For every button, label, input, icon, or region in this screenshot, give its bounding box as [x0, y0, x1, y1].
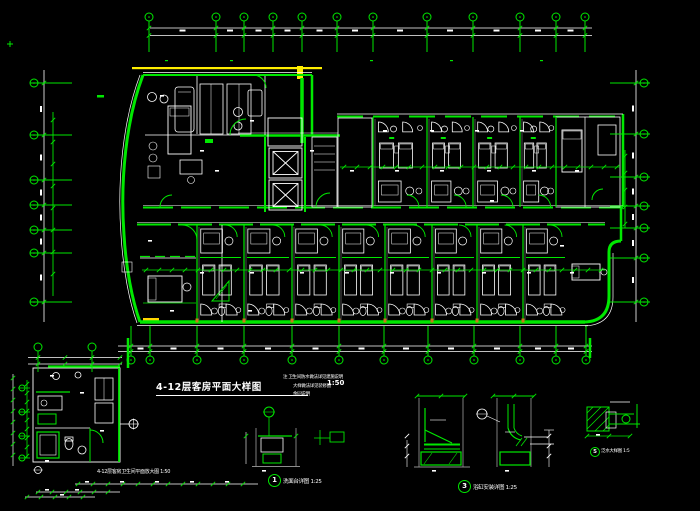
detail-bathtub	[407, 396, 554, 467]
title-underline	[156, 395, 308, 396]
detail-5-scale: 1:5	[623, 449, 629, 454]
detail-3-scale: 1:25	[506, 485, 517, 491]
detail-1-label: 洗面台详图 1:25	[283, 477, 322, 485]
stairwell	[312, 137, 337, 207]
detail-1-scale: 1:25	[310, 479, 321, 485]
floor-plan-walls	[120, 66, 623, 326]
bathroom-detail-plan	[13, 351, 258, 497]
detail-5-label-text: 泛水大样图	[601, 449, 622, 454]
bathroom-plan-caption: 4-12层客房卫生间平面放大图 1:50	[97, 468, 170, 475]
elevator-core	[268, 118, 302, 210]
detail-3-bubble: 3	[458, 480, 471, 493]
note-line-3: 余同说明	[293, 391, 310, 400]
cad-drawing-viewport[interactable]: 4-12层客房平面大样图 1:50 注 卫生间防水做法详见建施说明 大样做法详见…	[0, 0, 700, 511]
detail-1-bubble: 1	[268, 474, 281, 487]
suite-furniture-bottom	[122, 225, 229, 302]
dimension-chains	[11, 165, 632, 499]
detail-3-label: 浴缸安装详图 1:25	[473, 483, 517, 491]
cad-canvas[interactable]	[0, 0, 700, 511]
note-line-1: 注 卫生间防水做法详见建施说明	[283, 374, 343, 383]
detail-1-label-text: 洗面台详图	[283, 479, 309, 485]
suite-furniture-top	[7, 41, 266, 207]
highlight-line-top	[132, 67, 322, 69]
detail-3-label-text: 浴缸安装详图	[473, 485, 504, 491]
detail-flashing	[587, 402, 640, 436]
drawing-title: 4-12层客房平面大样图	[156, 379, 262, 393]
detail-5-bubble: 5	[590, 447, 600, 457]
guest-room-bays	[196, 117, 566, 323]
detail-5-label: 泛水大样图 1:5	[601, 448, 629, 454]
